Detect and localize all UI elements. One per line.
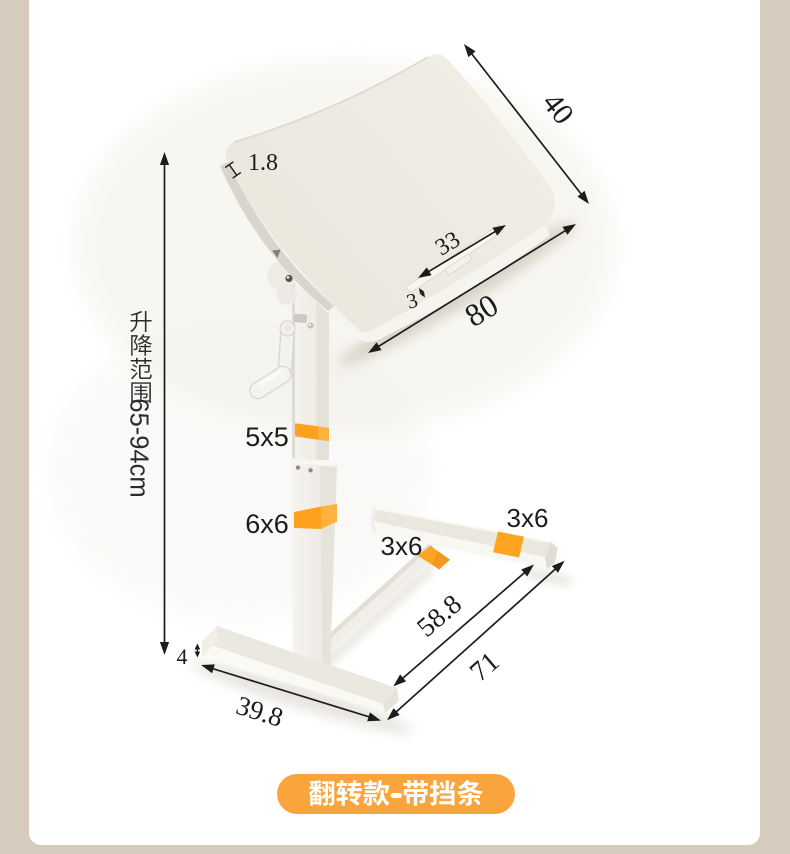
svg-text:3x6: 3x6	[507, 503, 549, 533]
svg-text:1.8: 1.8	[248, 150, 278, 176]
svg-text:3x6: 3x6	[381, 531, 423, 561]
svg-text:58.8: 58.8	[410, 588, 467, 643]
svg-text:5x5: 5x5	[245, 422, 289, 452]
svg-text:6x6: 6x6	[245, 509, 289, 539]
svg-text:71: 71	[464, 646, 505, 688]
svg-text:65-94cm: 65-94cm	[125, 398, 153, 497]
svg-text:4: 4	[177, 644, 188, 669]
